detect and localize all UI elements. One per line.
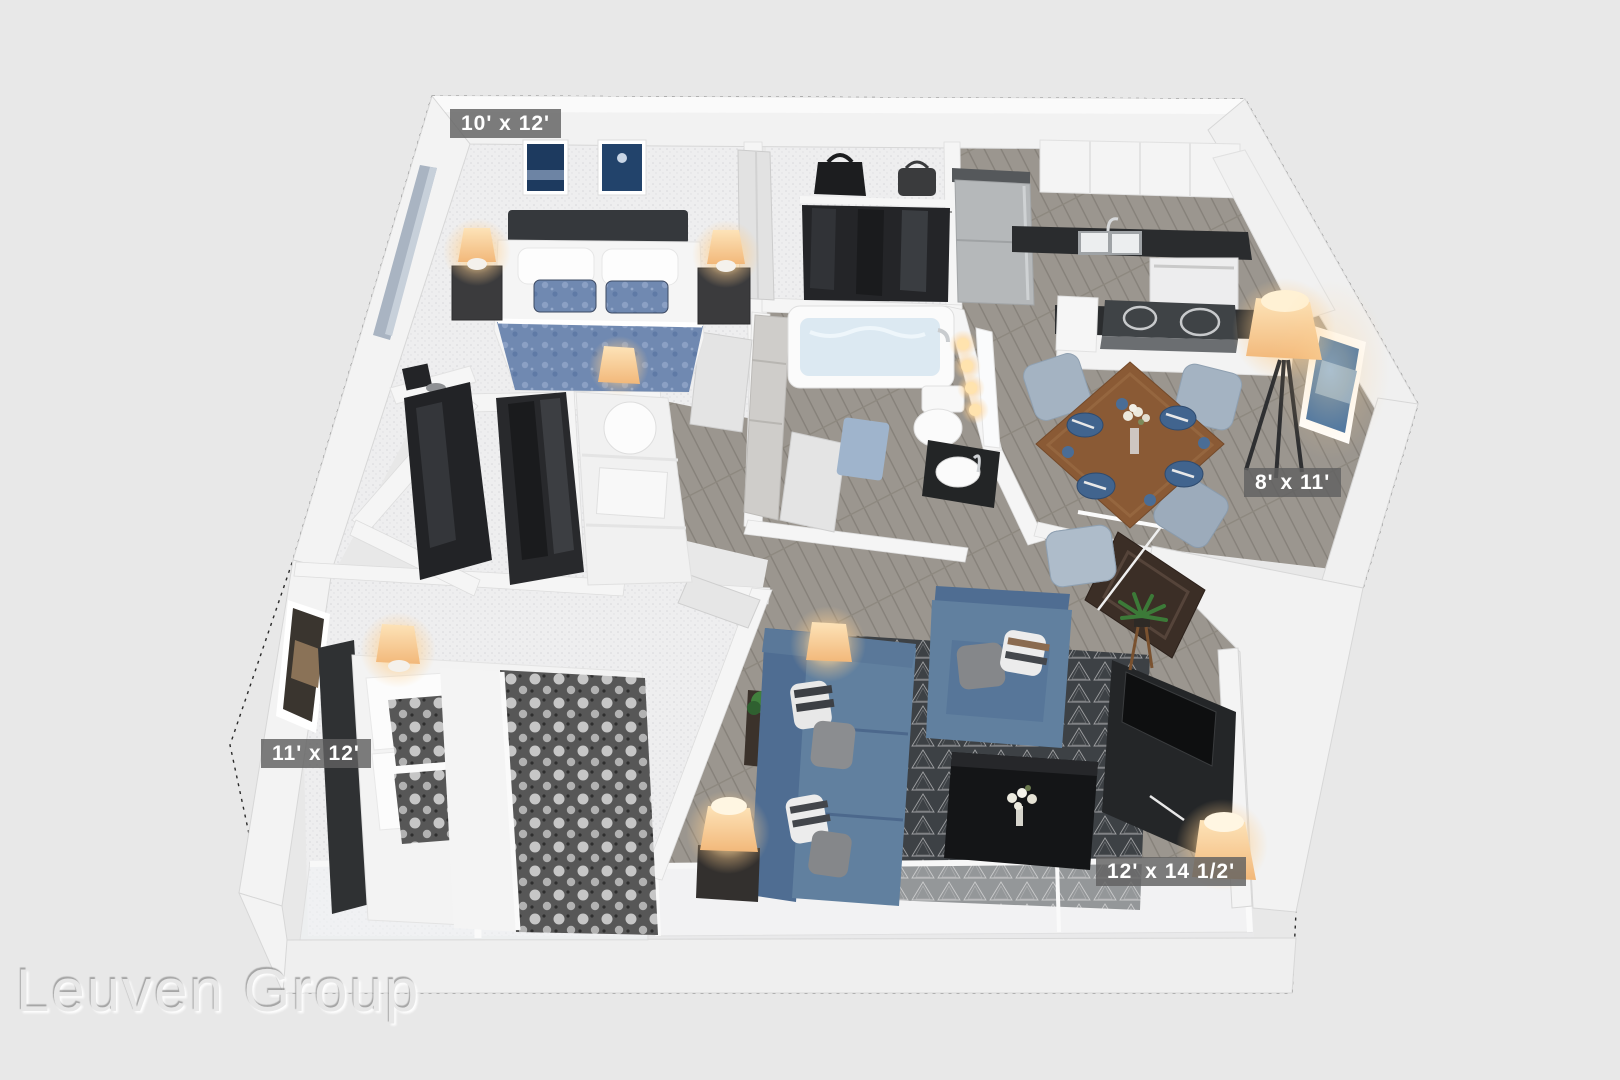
armchair xyxy=(926,586,1072,748)
laundry-hamper xyxy=(604,402,656,454)
room-dimension-label-bedroom-upper: 10' x 12' xyxy=(450,109,561,138)
closet-bag xyxy=(814,162,866,196)
headboard xyxy=(508,210,688,244)
walkin-closet xyxy=(390,364,692,585)
throw-pillow xyxy=(810,720,857,770)
vanity-sink xyxy=(936,457,980,487)
floorplan-scene xyxy=(0,0,1620,1080)
coffee-table xyxy=(944,752,1098,870)
room-dimension-label-bedroom-lower: 11' x 12' xyxy=(261,739,371,768)
throw-pillow xyxy=(807,829,853,878)
bathroom-door xyxy=(780,432,846,532)
throw-pillow xyxy=(956,642,1006,691)
room-dimension-label-living: 12' x 14 1/2' xyxy=(1096,857,1246,886)
wall-bottom xyxy=(283,938,1296,993)
table-lamp xyxy=(707,230,745,264)
floral-duvet xyxy=(500,670,658,935)
toilet-bowl xyxy=(914,409,962,447)
bedroom-lower-furniture xyxy=(318,640,658,935)
table-lamp xyxy=(458,228,496,262)
room-dimension-label-dining: 8' x 11' xyxy=(1244,468,1341,497)
bath-mat xyxy=(836,417,890,481)
table-lamp xyxy=(598,346,640,384)
storage-box xyxy=(596,468,667,519)
table-lamp xyxy=(806,622,852,662)
closet-bag xyxy=(898,168,936,196)
table-lamp xyxy=(376,624,420,664)
island-pillar xyxy=(1056,296,1098,352)
floorplan-3d-render: 10' x 12' 8' x 11' 11' x 12' 12' x 14 1/… xyxy=(0,0,1620,1080)
company-watermark: Leuven Group xyxy=(16,956,420,1025)
dining-chair xyxy=(1044,524,1117,589)
